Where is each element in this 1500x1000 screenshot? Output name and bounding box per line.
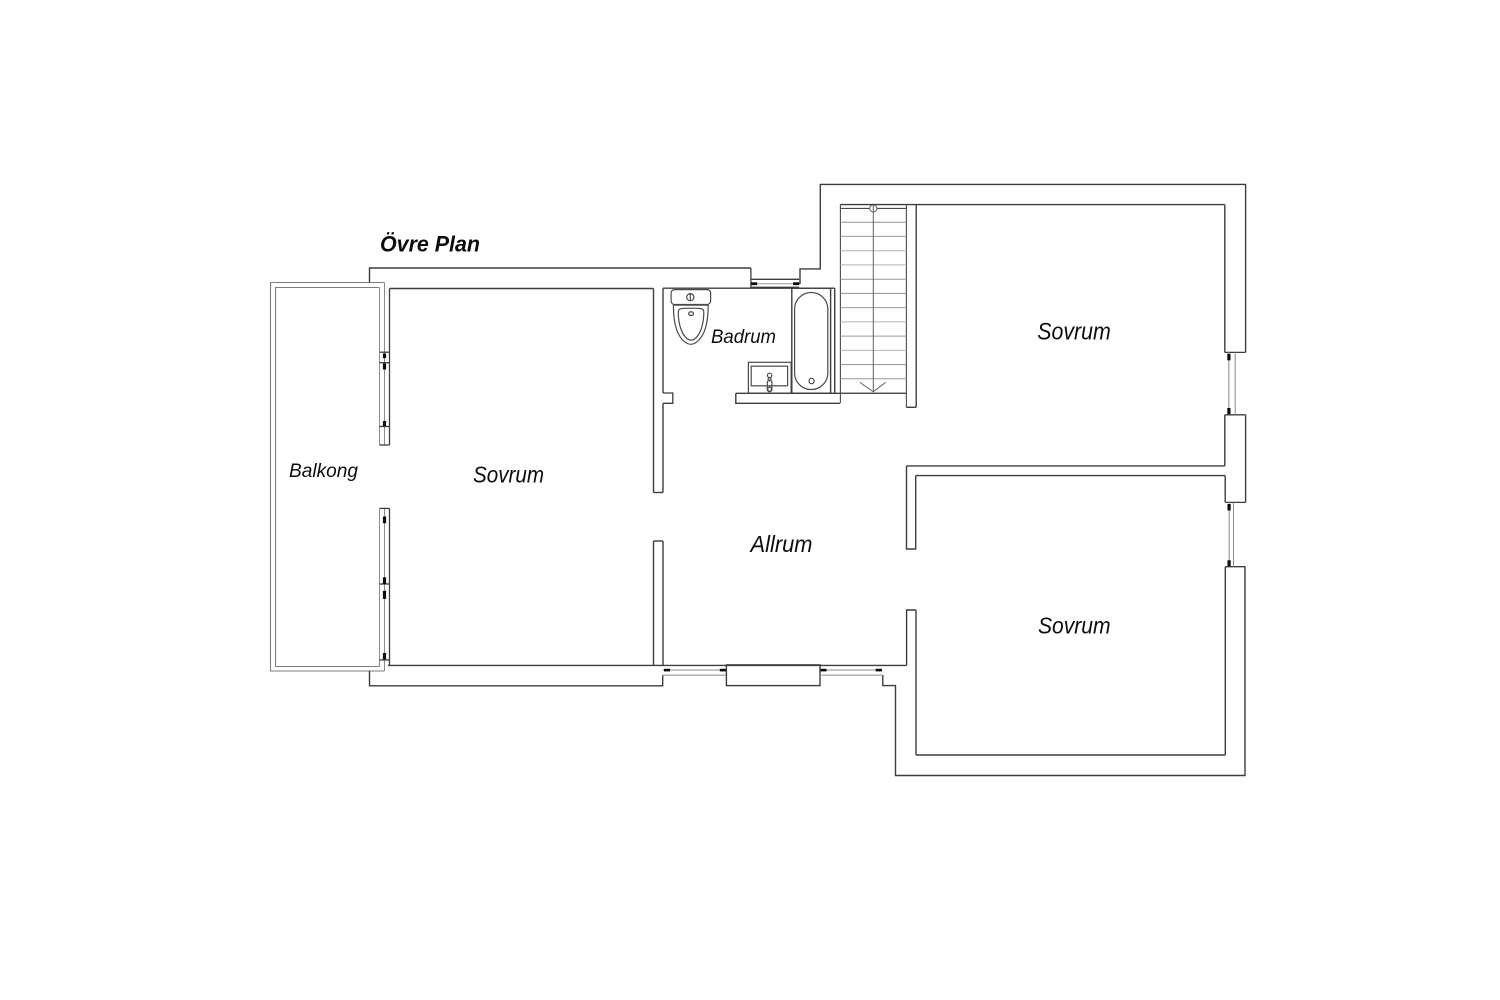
svg-text:Allrum: Allrum <box>749 531 813 557</box>
svg-text:Balkong: Balkong <box>289 460 358 482</box>
svg-text:Sovrum: Sovrum <box>473 461 544 487</box>
svg-text:Sovrum: Sovrum <box>1037 319 1111 346</box>
svg-text:Badrum: Badrum <box>711 327 776 348</box>
svg-text:Övre Plan: Övre Plan <box>380 232 480 257</box>
svg-text:Sovrum: Sovrum <box>1038 613 1111 639</box>
